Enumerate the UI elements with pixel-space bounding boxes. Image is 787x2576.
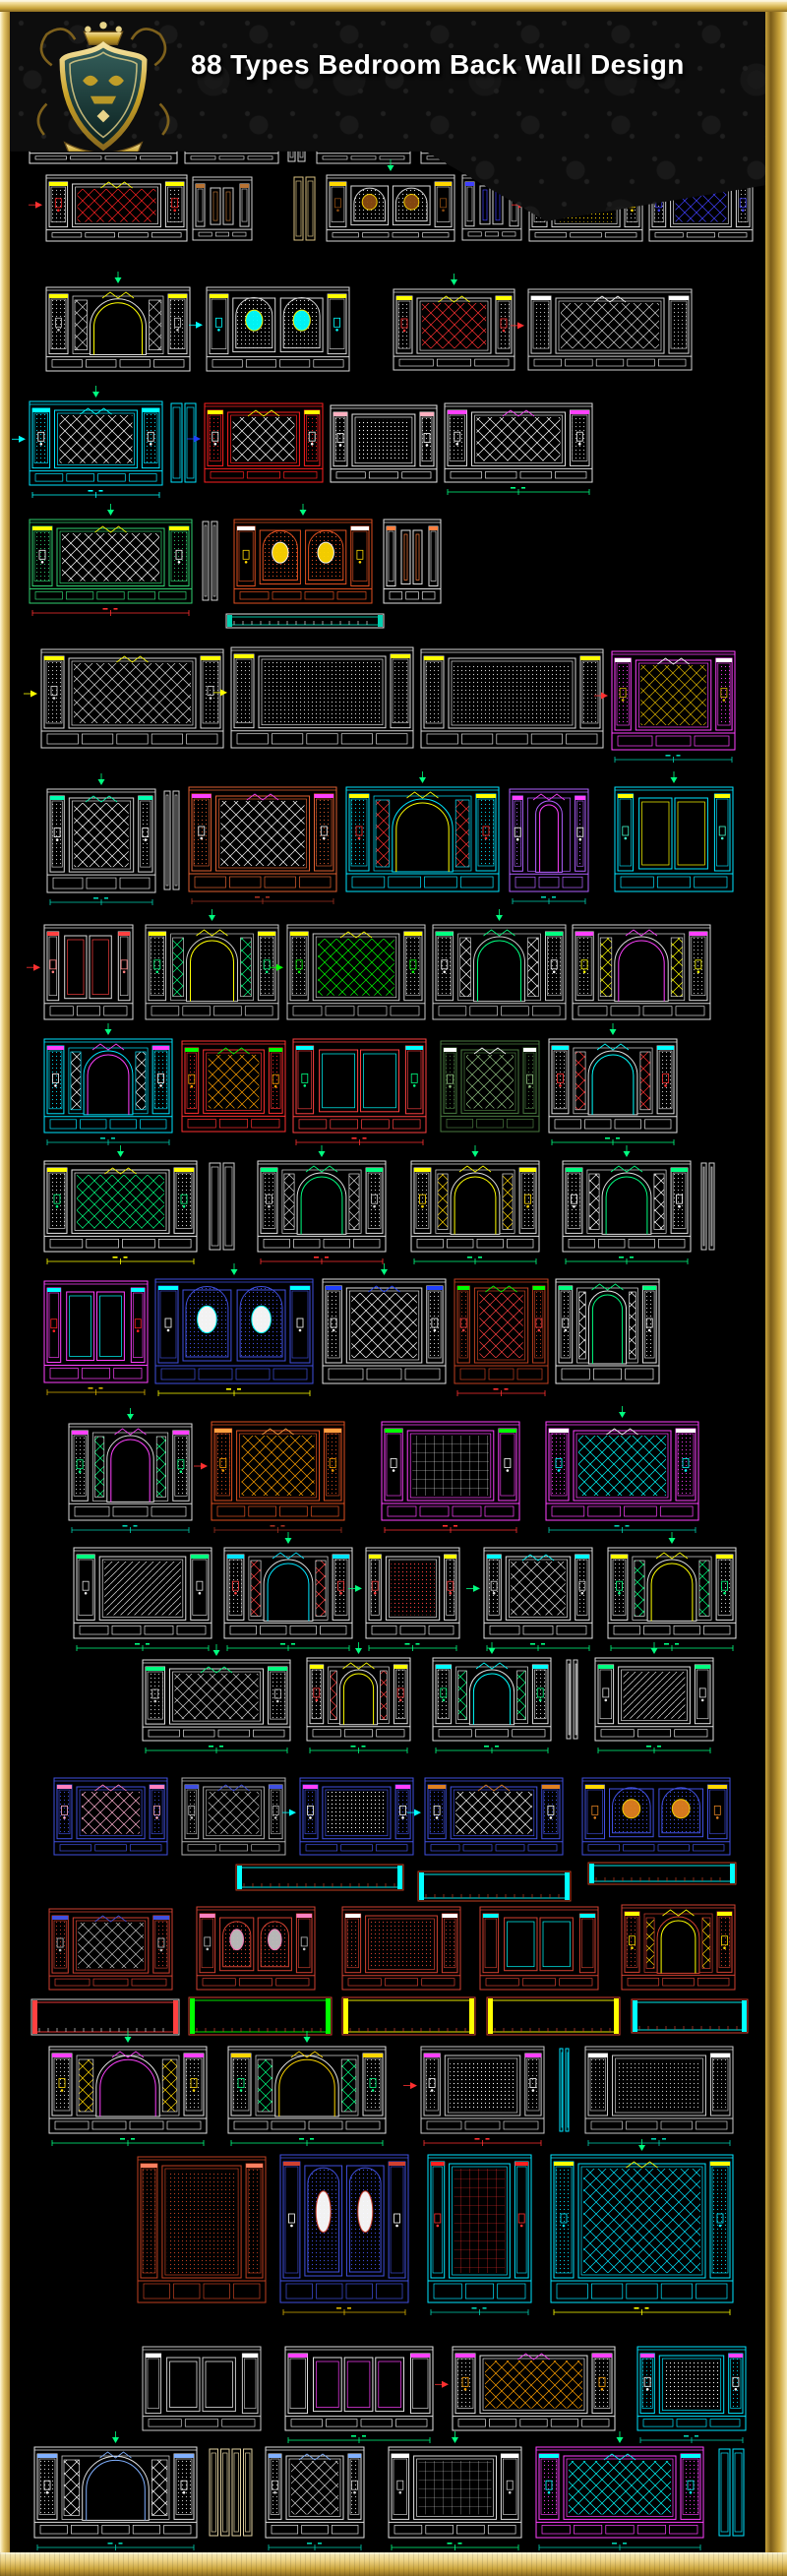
cad-drawing (480, 1907, 598, 1990)
cad-drawing (595, 1642, 713, 1753)
cad-drawing (560, 2049, 569, 2131)
cad-drawing (236, 1865, 403, 1890)
cad-drawing (546, 1406, 698, 1533)
cad-drawing (54, 1778, 167, 1855)
page-title: 88 Types Bedroom Back Wall Design (191, 49, 771, 81)
cad-drawing (466, 1548, 592, 1651)
cad-drawing (210, 2449, 252, 2536)
cad-drawing (294, 177, 315, 240)
cad-drawing (197, 1907, 315, 1990)
cad-drawing (44, 1145, 197, 1264)
cad-drawing (433, 1642, 551, 1753)
cad-drawing (171, 403, 196, 482)
cad-drawing (213, 647, 413, 748)
cad-drawing (258, 1145, 386, 1264)
cad-drawing (384, 520, 441, 603)
cad-drawing (293, 1039, 426, 1145)
cad-drawing (594, 651, 735, 763)
cad-drawing (49, 2031, 207, 2146)
cad-drawing (210, 1163, 234, 1250)
cad-drawing (282, 1778, 413, 1855)
cad-drawing (585, 2047, 733, 2146)
cad-drawing (226, 614, 384, 628)
cad-drawing (393, 274, 515, 370)
cad-drawing (155, 1263, 313, 1396)
cad-drawing (323, 1263, 446, 1383)
cad-drawing (382, 1422, 519, 1533)
cad-drawing (331, 405, 437, 482)
cad-drawing (234, 504, 372, 603)
cad-drawing (632, 1999, 748, 2033)
cad-drawing (187, 403, 323, 482)
cad-drawing (27, 925, 133, 1019)
cad-drawing (615, 771, 733, 891)
cad-drawing (307, 1642, 410, 1753)
cad-drawing (49, 1909, 172, 1990)
cad-drawing (536, 2431, 703, 2550)
cad-drawing (143, 2347, 261, 2430)
cad-drawing (46, 272, 190, 371)
cad-drawing (12, 386, 162, 498)
cad-drawing (31, 1999, 179, 2035)
cad-drawing (510, 789, 588, 904)
cad-drawing (418, 1871, 571, 1901)
cad-drawing (29, 175, 187, 241)
cad-drawing (549, 1023, 677, 1145)
cad-drawing (164, 791, 179, 889)
cad-drawing (487, 1997, 620, 2035)
cad-drawing (567, 1660, 577, 1739)
cad-drawing (327, 159, 454, 241)
cad-drawing (445, 403, 592, 495)
cad-drawing (407, 1778, 563, 1855)
cad-drawing (556, 1279, 659, 1383)
cad-drawing (189, 1997, 332, 2035)
cad-drawing (582, 1778, 730, 1855)
cad-drawing (146, 909, 278, 1019)
cad-drawing (348, 1548, 459, 1651)
cad-drawing (24, 649, 223, 748)
cad-drawing (511, 289, 692, 370)
cad-drawing (454, 1279, 548, 1396)
cad-drawing (403, 2047, 544, 2146)
cad-drawing (573, 925, 710, 1019)
cad-drawing (143, 1644, 290, 1753)
cad-drawing (411, 1145, 539, 1264)
cad-drawing (193, 177, 252, 240)
cad-drawing (551, 2139, 733, 2315)
cad-drawing (428, 2155, 531, 2315)
cad-drawing (608, 1532, 736, 1651)
cad-drawing (138, 2157, 266, 2302)
cad-drawing (433, 909, 566, 1019)
cad-drawing (280, 2155, 408, 2315)
cad-drawing (34, 2431, 197, 2550)
cad-drawings-canvas (0, 0, 787, 2576)
cad-drawing (701, 1163, 714, 1250)
cad-drawing (189, 787, 336, 904)
cad-drawing (389, 2431, 521, 2550)
cad-drawing (47, 773, 155, 905)
cad-drawing (182, 1778, 285, 1855)
cad-drawing (622, 1905, 735, 1990)
cad-drawing (44, 1023, 172, 1145)
cad-drawing (342, 1997, 475, 2035)
cad-drawing (182, 1041, 285, 1132)
cad-drawing (194, 1422, 344, 1533)
cad-drawing (441, 1041, 539, 1132)
cad-drawing (563, 1145, 691, 1264)
cad-drawing (270, 925, 425, 1019)
cad-drawing (435, 2347, 615, 2430)
cad-drawing (342, 1907, 460, 1990)
cad-drawing (719, 2449, 744, 2536)
cad-drawing (30, 504, 192, 616)
cad-drawing (266, 2447, 364, 2550)
cad-drawing (588, 1863, 736, 1884)
cad-drawing (421, 649, 603, 748)
poster-root: 88 Types Bedroom Back Wall Design (0, 0, 787, 2576)
cad-drawing (346, 771, 499, 891)
cad-drawing (69, 1408, 192, 1533)
cad-drawing (44, 1281, 148, 1395)
cad-drawing (228, 2031, 386, 2146)
cad-drawing (203, 521, 217, 600)
cad-drawing (285, 2347, 433, 2443)
cad-drawing (224, 1532, 352, 1651)
cad-drawing (74, 1548, 212, 1651)
cad-drawing (189, 287, 349, 371)
cad-drawing (637, 2347, 746, 2443)
